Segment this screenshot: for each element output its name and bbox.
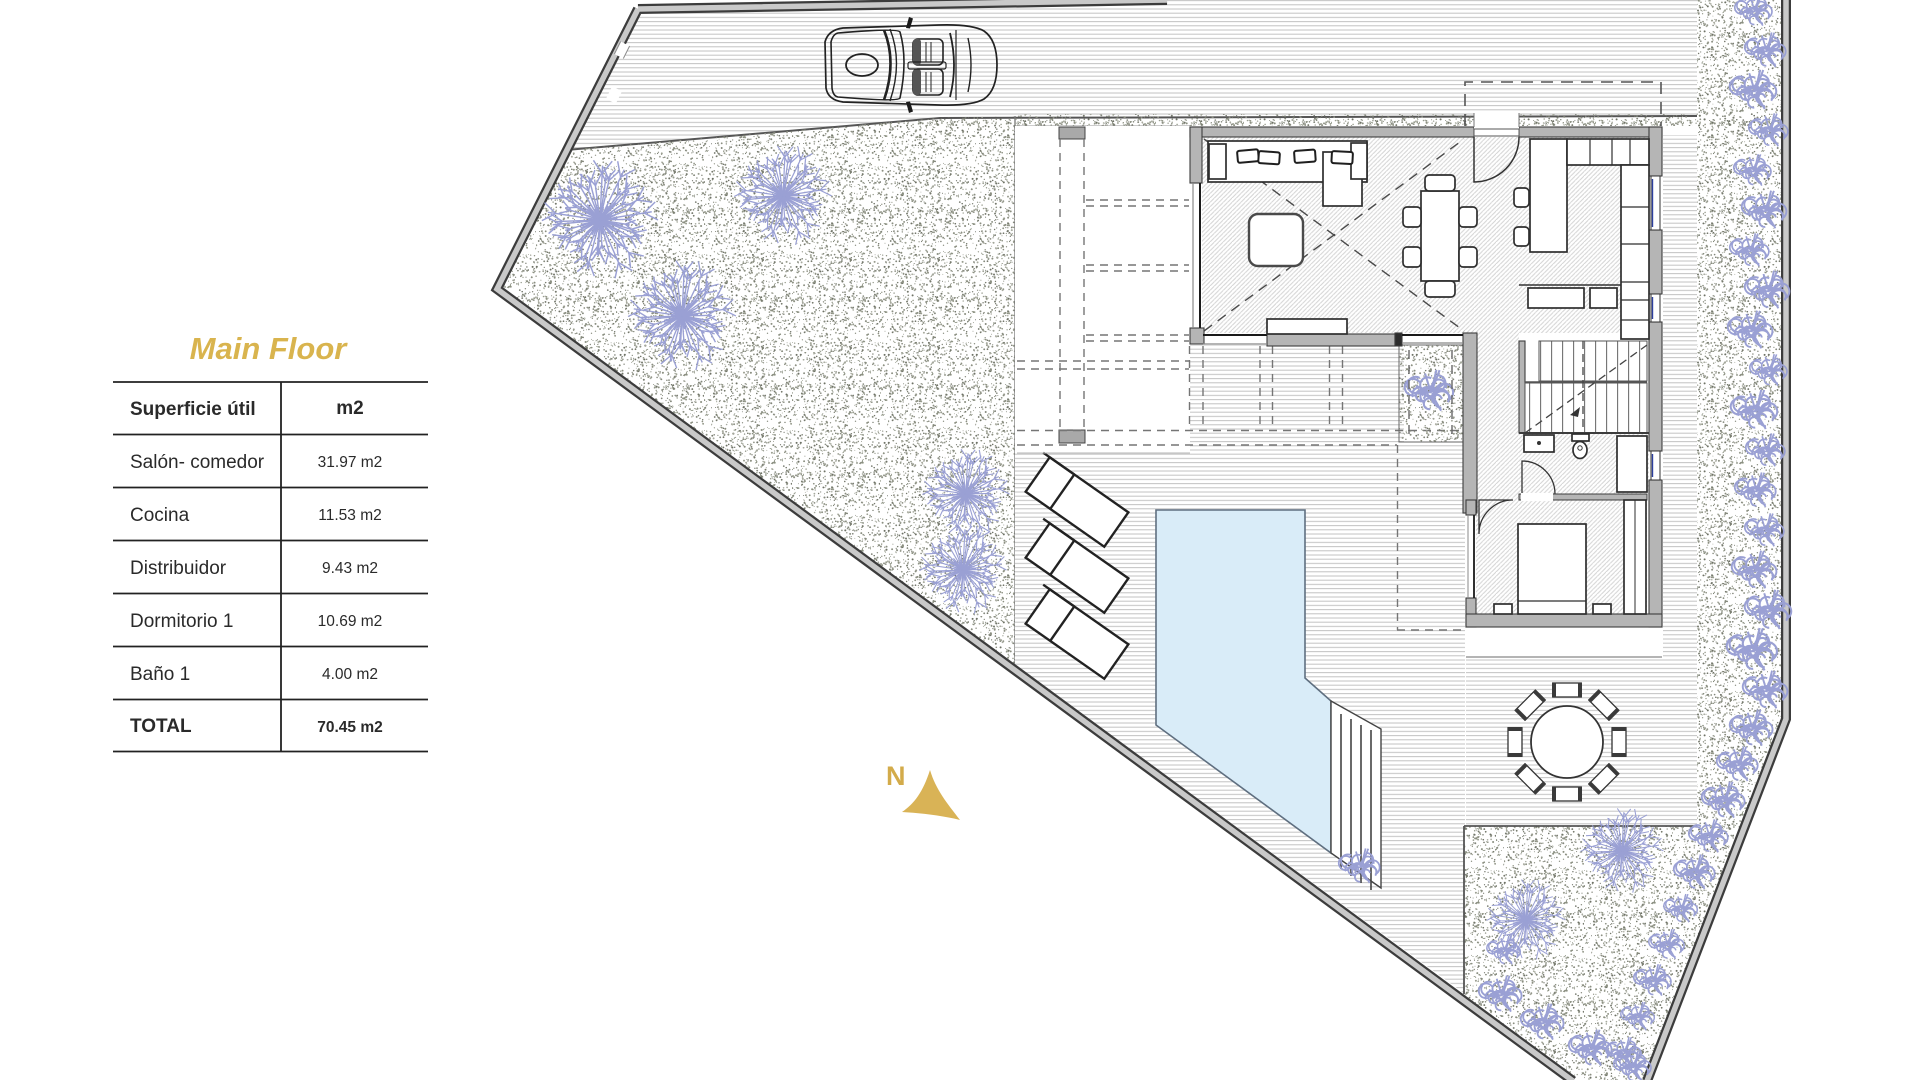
svg-text:Cocina: Cocina [130, 505, 190, 526]
svg-text:Baño 1: Baño 1 [130, 664, 190, 685]
svg-text:11.53 m2: 11.53 m2 [318, 507, 381, 524]
svg-text:N: N [886, 761, 906, 791]
svg-text:70.45 m2: 70.45 m2 [317, 719, 383, 736]
svg-text:Main Floor: Main Floor [190, 331, 349, 366]
svg-text:Dormitorio 1: Dormitorio 1 [130, 611, 233, 632]
svg-text:4.00 m2: 4.00 m2 [322, 666, 378, 683]
svg-text:Distribuidor: Distribuidor [130, 558, 227, 579]
svg-text:TOTAL: TOTAL [130, 716, 192, 737]
svg-text:m2: m2 [336, 398, 363, 419]
svg-text:Superficie útil: Superficie útil [130, 399, 256, 420]
svg-text:10.69 m2: 10.69 m2 [318, 613, 383, 630]
svg-text:9.43 m2: 9.43 m2 [322, 560, 378, 577]
svg-text:Salón- comedor: Salón- comedor [130, 452, 265, 473]
svg-text:31.97 m2: 31.97 m2 [318, 454, 383, 471]
